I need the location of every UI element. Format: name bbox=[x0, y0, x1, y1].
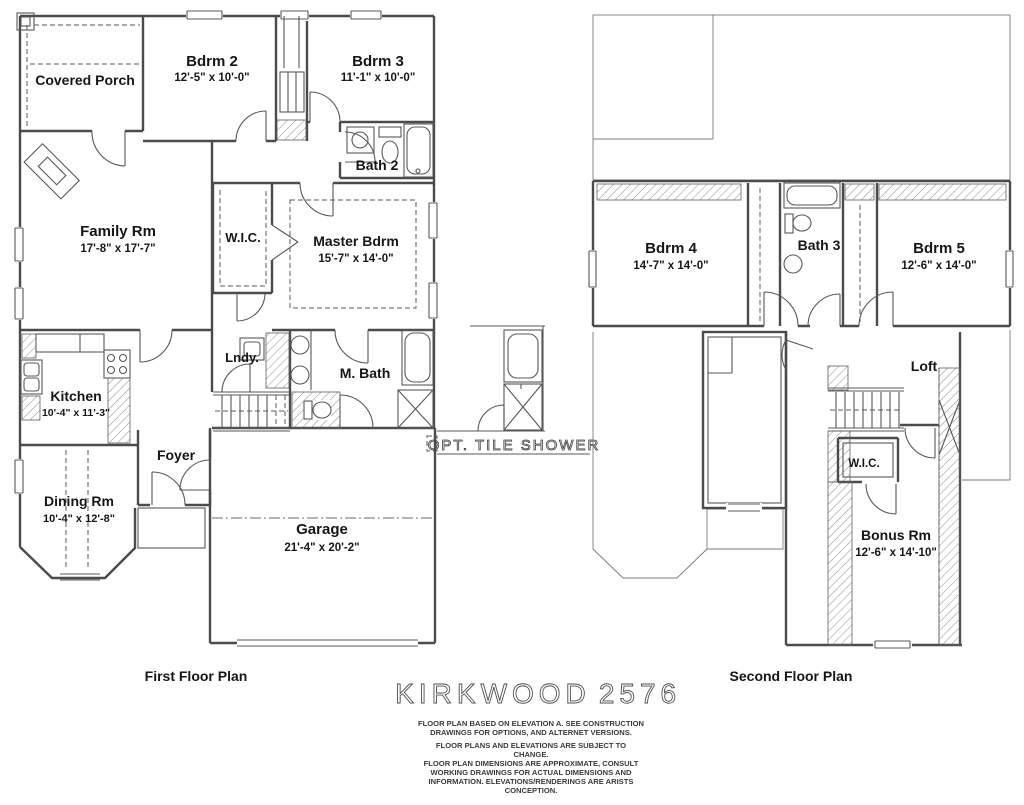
disclaimer-line: CONCEPTION. bbox=[505, 786, 558, 795]
f2-roof-outline bbox=[593, 15, 1010, 180]
fireplace-icon bbox=[24, 144, 79, 199]
label-opt-tile-shower: OPT. TILE SHOWER bbox=[428, 437, 601, 454]
label-bdrm5: Bdrm 5 bbox=[913, 240, 965, 257]
label-master-bdrm: Master Bdrm bbox=[313, 233, 399, 249]
bath2-sink-icon bbox=[347, 127, 374, 153]
dims-bdrm5: 12'-6" x 14'-0" bbox=[901, 260, 976, 272]
hall-closet-shaft bbox=[277, 16, 306, 140]
front-stoop bbox=[138, 508, 205, 548]
dims-kitchen: 10'-4" x 11'-3" bbox=[42, 407, 110, 419]
disclaimer-line: CHANGE. bbox=[513, 750, 548, 759]
f1-door-swings bbox=[92, 92, 375, 505]
disclaimer-notes: FLOOR PLAN BASED ON ELEVATION A. SEE CON… bbox=[418, 719, 644, 795]
dims-bdrm4: 14'-7" x 14'-0" bbox=[633, 260, 708, 272]
floor-plan-sheet: Covered Porch Bdrm 2 12'-5" x 10'-0" Bdr… bbox=[0, 0, 1024, 805]
label-bath3: Bath 3 bbox=[798, 237, 841, 253]
mbath-sink-icon bbox=[291, 336, 309, 354]
label-dining-rm: Dining Rm bbox=[44, 493, 114, 509]
label-wic-2: W.I.C. bbox=[848, 458, 879, 470]
label-m-bath: M. Bath bbox=[340, 365, 391, 381]
label-lndy: Lndy. bbox=[225, 350, 259, 365]
mbath-tub-icon bbox=[402, 330, 433, 385]
label-bath2: Bath 2 bbox=[356, 157, 399, 173]
label-bonus-rm: Bonus Rm bbox=[861, 527, 931, 543]
dims-family-rm: 17'-8" x 17'-7" bbox=[80, 243, 155, 255]
dims-garage: 21'-4" x 20'-2" bbox=[284, 542, 359, 554]
dims-bonus-rm: 12'-6" x 14'-10" bbox=[855, 547, 937, 559]
stairs-first-floor bbox=[213, 392, 290, 431]
second-floor-plan: Bdrm 4 14'-7" x 14'-0" Bath 3 Bdrm 5 12'… bbox=[588, 15, 1015, 650]
label-foyer: Foyer bbox=[157, 447, 196, 463]
label-bdrm3: Bdrm 3 bbox=[352, 53, 404, 70]
disclaimer-line: WORKING DRAWINGS FOR ACTUAL DIMENSIONS A… bbox=[431, 768, 632, 777]
covered-porch-detail bbox=[17, 13, 140, 127]
bath3-toilet-icon bbox=[785, 214, 793, 233]
first-floor-plan: Covered Porch Bdrm 2 12'-5" x 10'-0" Bdr… bbox=[14, 10, 439, 646]
wic-closet bbox=[213, 183, 298, 321]
dishwasher-icon bbox=[22, 396, 40, 420]
plan-title-name: KIRKWOOD bbox=[395, 678, 591, 709]
disclaimer-line: FLOOR PLANS AND ELEVATIONS ARE SUBJECT T… bbox=[436, 741, 626, 750]
label-kitchen: Kitchen bbox=[50, 388, 101, 404]
mbath-sink-icon bbox=[291, 366, 309, 384]
disclaimer-line: FLOOR PLAN BASED ON ELEVATION A. SEE CON… bbox=[418, 719, 644, 728]
disclaimer-line: DRAWINGS FOR OPTIONS, AND ALTERNET VERSI… bbox=[430, 728, 632, 737]
label-garage: Garage bbox=[296, 521, 348, 538]
f2-center-chase bbox=[703, 332, 786, 513]
f1-walls bbox=[20, 16, 435, 643]
label-covered-porch: Covered Porch bbox=[35, 72, 135, 88]
garage-door bbox=[237, 640, 418, 646]
floor-plan-drawing: Covered Porch Bdrm 2 12'-5" x 10'-0" Bdr… bbox=[0, 0, 1024, 805]
dining-ceiling-lines bbox=[66, 450, 88, 570]
dims-bdrm2: 12'-5" x 10'-0" bbox=[174, 72, 249, 84]
bath3-sink-icon bbox=[784, 255, 802, 273]
label-wic-1: W.I.C. bbox=[225, 230, 260, 245]
label-bdrm2: Bdrm 2 bbox=[186, 53, 238, 70]
dims-master-bdrm: 15'-7" x 14'-0" bbox=[318, 253, 393, 265]
dims-dining-rm: 10'-4" x 12'-8" bbox=[43, 513, 115, 525]
stove-icon bbox=[104, 350, 130, 378]
label-bdrm4: Bdrm 4 bbox=[645, 240, 697, 257]
caption-first-floor: First Floor Plan bbox=[145, 668, 248, 684]
label-loft: Loft bbox=[911, 358, 938, 374]
washer-dryer-icon bbox=[266, 333, 289, 388]
caption-second-floor: Second Floor Plan bbox=[730, 668, 853, 684]
sheet-titles: First Floor Plan Second Floor Plan KIRKW… bbox=[145, 668, 853, 709]
plan-title-number: 2576 bbox=[599, 678, 681, 709]
dims-bdrm3: 11'-1" x 10'-0" bbox=[341, 72, 416, 84]
opt-tile-shower-inset: OPT. TILE SHOWER bbox=[427, 326, 600, 454]
disclaimer-line: INFORMATION. ELEVATIONS/RENDERINGS ARE A… bbox=[429, 777, 634, 786]
disclaimer-line: FLOOR PLAN DIMENSIONS ARE APPROXIMATE, C… bbox=[424, 759, 639, 768]
bath3-fixtures bbox=[784, 183, 840, 273]
label-family-rm: Family Rm bbox=[80, 223, 156, 240]
